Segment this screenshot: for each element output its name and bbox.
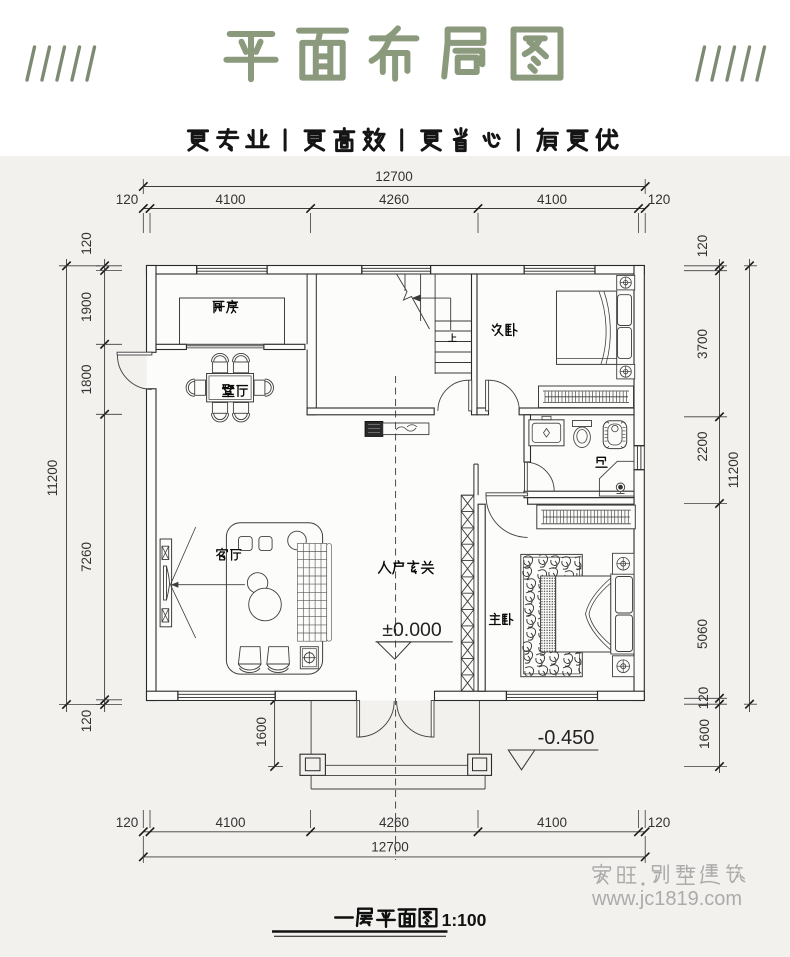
svg-text:1900: 1900 xyxy=(79,292,94,322)
svg-text:7260: 7260 xyxy=(79,542,94,572)
svg-text:120: 120 xyxy=(648,815,671,830)
svg-text:12700: 12700 xyxy=(371,840,409,855)
svg-text:120: 120 xyxy=(116,815,139,830)
svg-text:120: 120 xyxy=(79,232,94,255)
svg-text:12700: 12700 xyxy=(375,169,413,184)
svg-text:120: 120 xyxy=(696,687,711,710)
svg-text:-0.450: -0.450 xyxy=(538,727,595,749)
svg-text:11200: 11200 xyxy=(45,460,60,497)
svg-text:www.jc1819.com: www.jc1819.com xyxy=(591,888,742,910)
svg-text:3700: 3700 xyxy=(695,329,710,359)
svg-text:4100: 4100 xyxy=(537,192,567,207)
svg-text:5060: 5060 xyxy=(695,619,710,649)
svg-text:11200: 11200 xyxy=(726,452,741,489)
svg-text:4100: 4100 xyxy=(537,815,567,830)
svg-text:120: 120 xyxy=(116,192,139,207)
svg-text:1:100: 1:100 xyxy=(442,910,487,930)
svg-text:1600: 1600 xyxy=(697,719,712,749)
svg-text:4100: 4100 xyxy=(215,815,245,830)
svg-text:120: 120 xyxy=(648,192,671,207)
svg-text:120: 120 xyxy=(695,235,710,258)
svg-text:4260: 4260 xyxy=(379,815,409,830)
svg-text:2200: 2200 xyxy=(695,431,710,461)
svg-text:4260: 4260 xyxy=(379,192,409,207)
svg-text:4100: 4100 xyxy=(215,192,245,207)
svg-text:1800: 1800 xyxy=(79,364,94,394)
svg-text:±0.000: ±0.000 xyxy=(382,619,442,641)
svg-text:120: 120 xyxy=(79,710,94,733)
svg-text:1600: 1600 xyxy=(254,717,269,747)
